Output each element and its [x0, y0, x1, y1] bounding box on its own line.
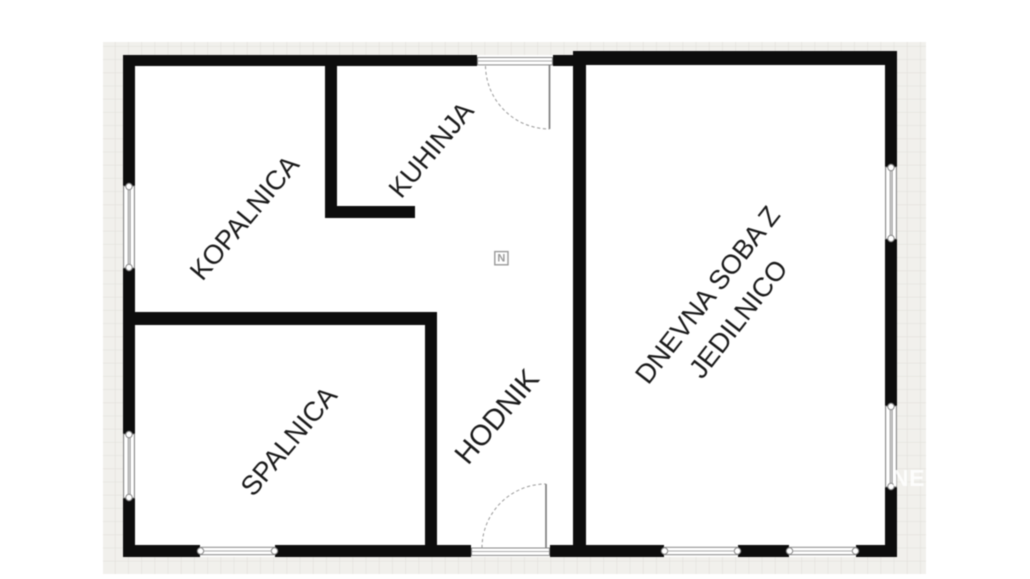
svg-text:NE.: NE.: [892, 465, 932, 491]
svg-text:N: N: [497, 253, 505, 265]
